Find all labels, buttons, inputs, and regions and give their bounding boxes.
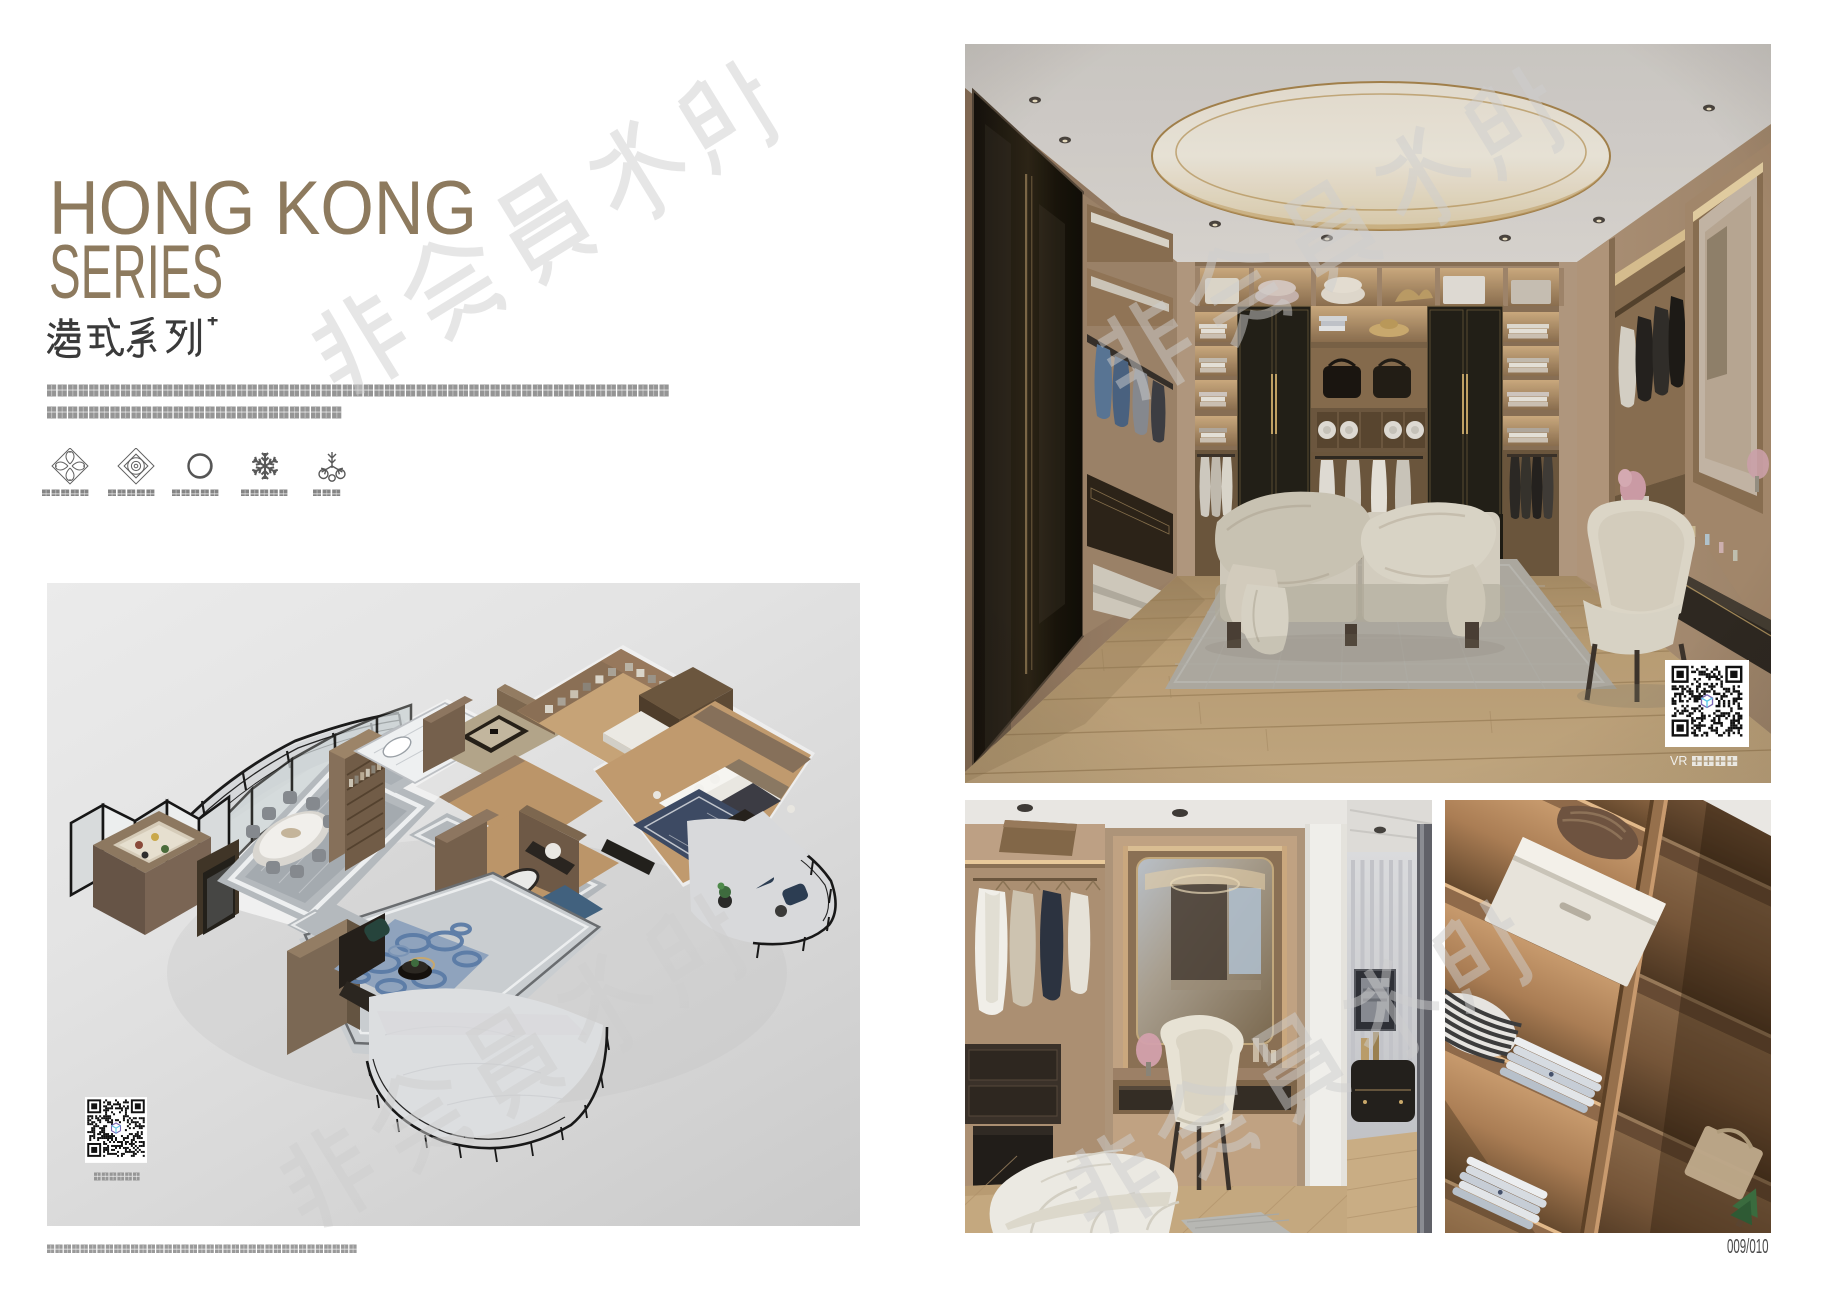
svg-text:VR: VR xyxy=(1670,754,1687,768)
